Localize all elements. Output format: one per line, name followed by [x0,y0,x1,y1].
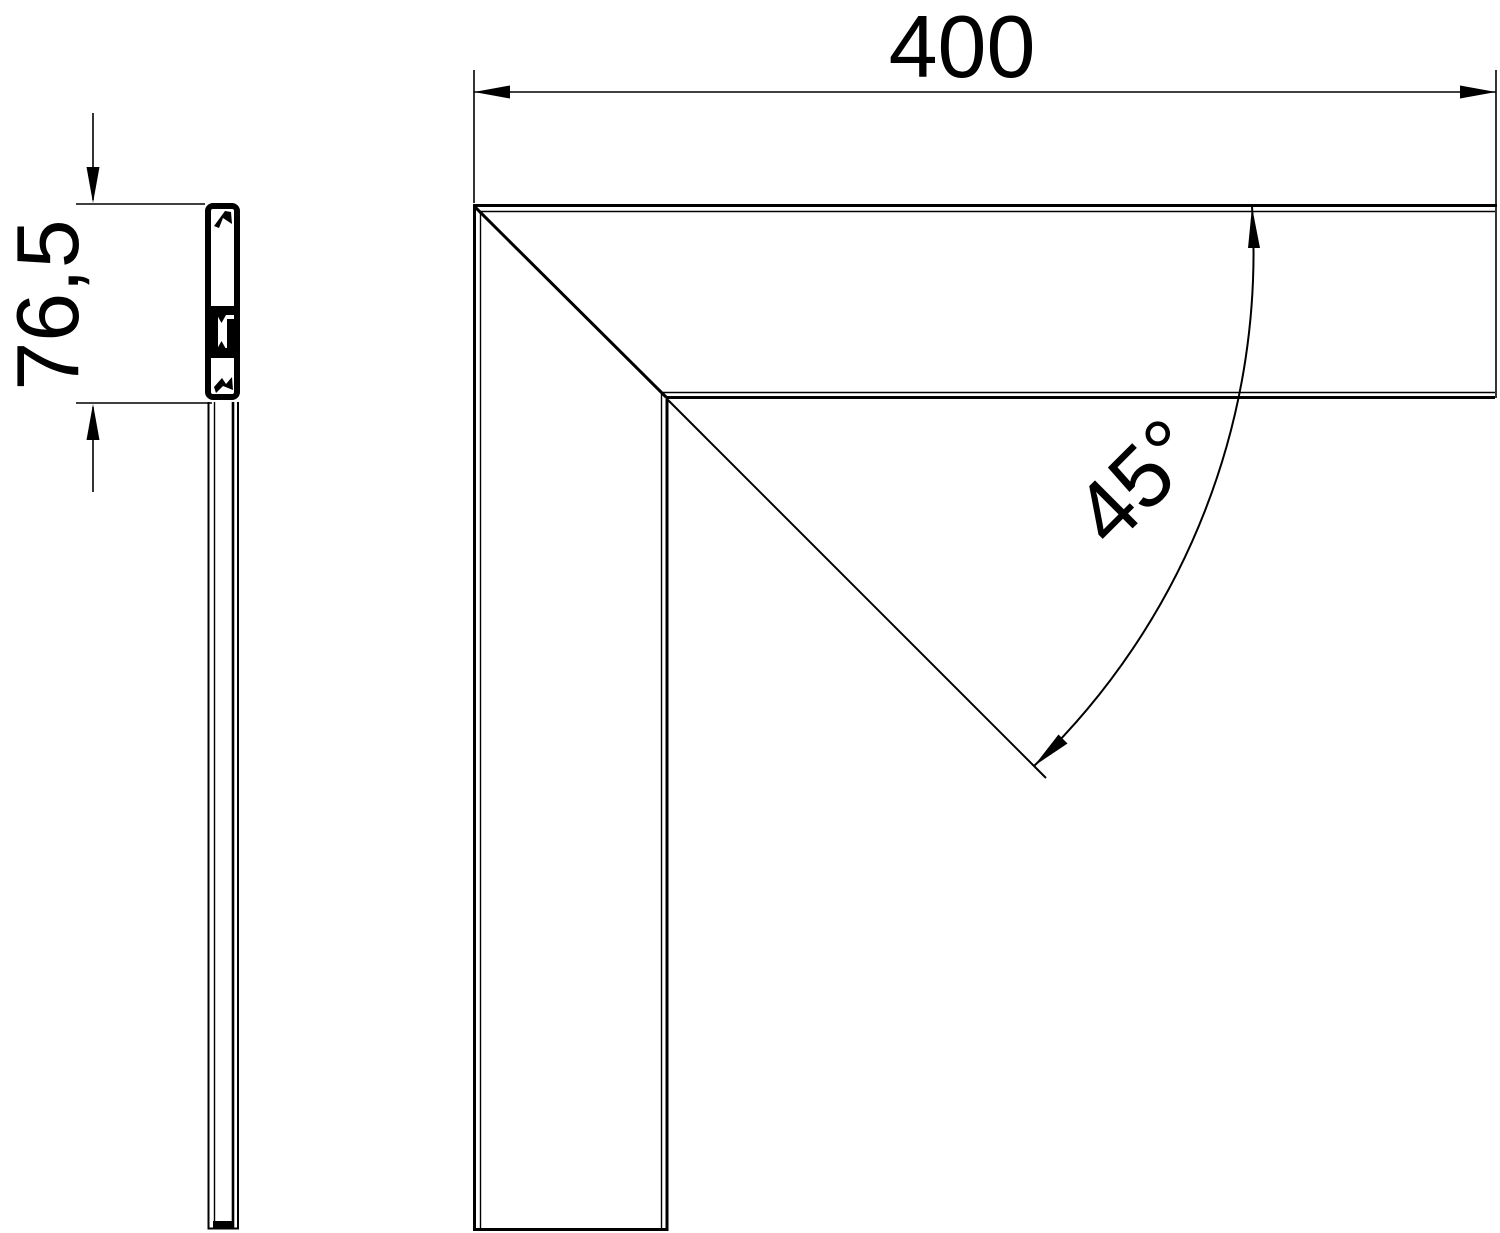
angle-arrow-bottom [1034,735,1068,767]
side-view [208,206,240,1229]
technical-drawing: 400 76,5 45° [0,0,1500,1233]
mitre-joint-line [474,206,666,397]
profile-bottom-clip [214,377,233,393]
height-dimension: 76,5 [0,113,212,492]
profile-coupler [211,306,235,358]
coupler-left-bar [211,315,218,352]
angle-dimension: 45° [1034,206,1260,766]
width-dimension-label: 400 [889,0,1036,96]
coupler-top-bar [211,306,235,315]
width-dimension: 400 [474,0,1496,398]
coupler-top-notch [217,315,226,323]
angle-reference-line [668,400,1046,778]
width-arrow-right [1460,86,1496,99]
front-view [473,206,1497,1230]
height-arrow-top [87,167,100,203]
profile-cross-section-outline [208,206,237,397]
angle-arrow-top [1248,207,1260,248]
coupler-bottom-bar [211,348,235,358]
coupler-right-bar [227,319,235,348]
coupler-bottom-notch [217,341,226,349]
drawing-svg: 400 76,5 45° [0,0,1500,1233]
profile-top-clip [214,211,232,228]
height-dimension-label: 76,5 [0,219,97,390]
height-arrow-bottom [87,404,100,440]
width-arrow-left [474,86,510,99]
